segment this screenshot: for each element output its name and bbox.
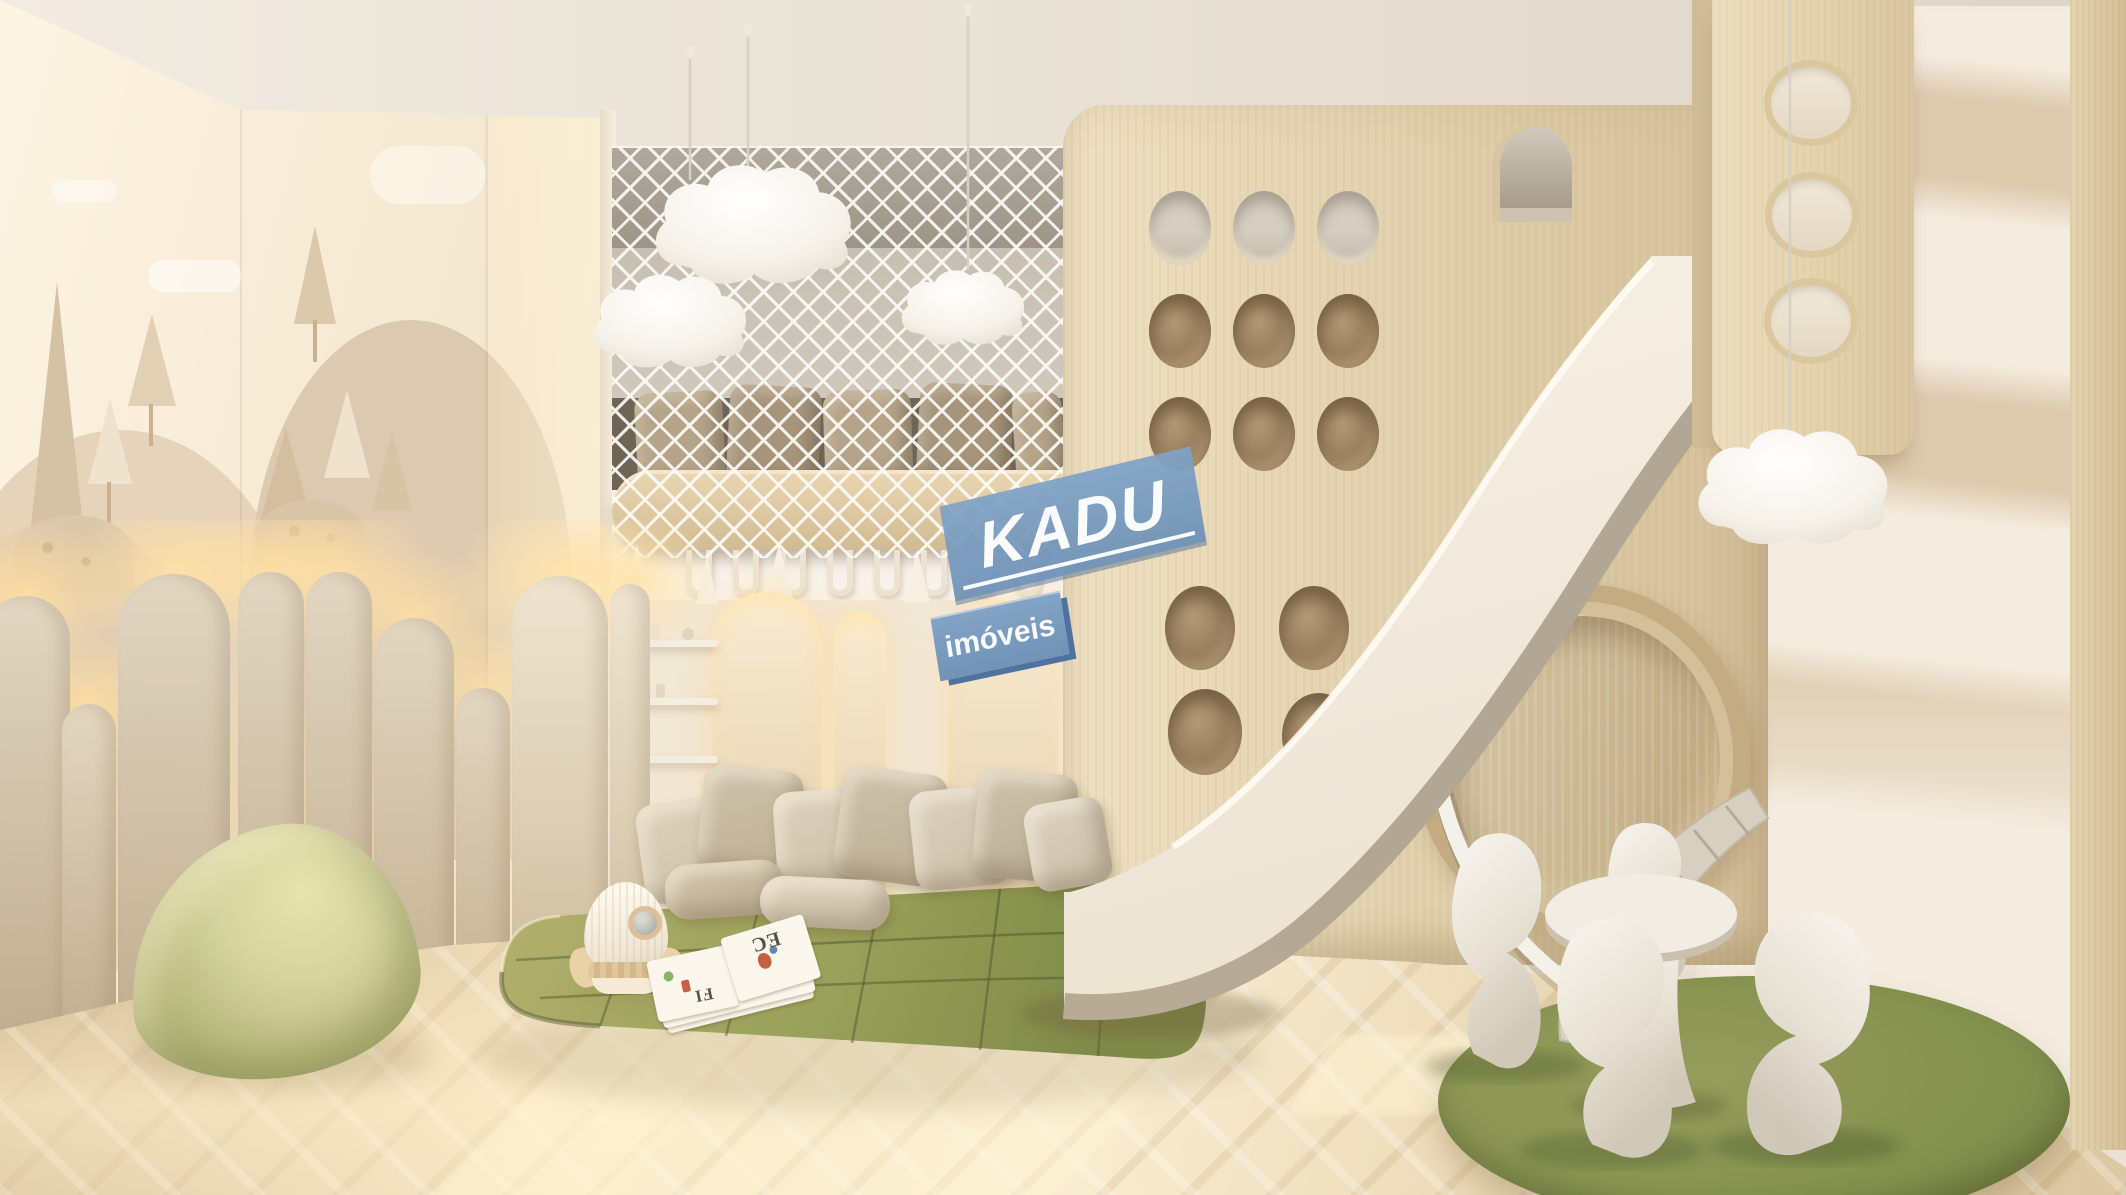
cloud-lamp (902, 270, 1024, 344)
playroom-render: FI EC (0, 0, 2126, 1195)
cord-mounts (684, 4, 974, 60)
cloud-lamp (656, 165, 851, 283)
cloud-lamp (594, 275, 746, 368)
watermark-subtitle: imóveis (943, 609, 1058, 666)
cloud-lamps (0, 0, 2126, 1195)
cloud-lamp (1698, 429, 1887, 544)
lamp-cords (690, 0, 1790, 432)
